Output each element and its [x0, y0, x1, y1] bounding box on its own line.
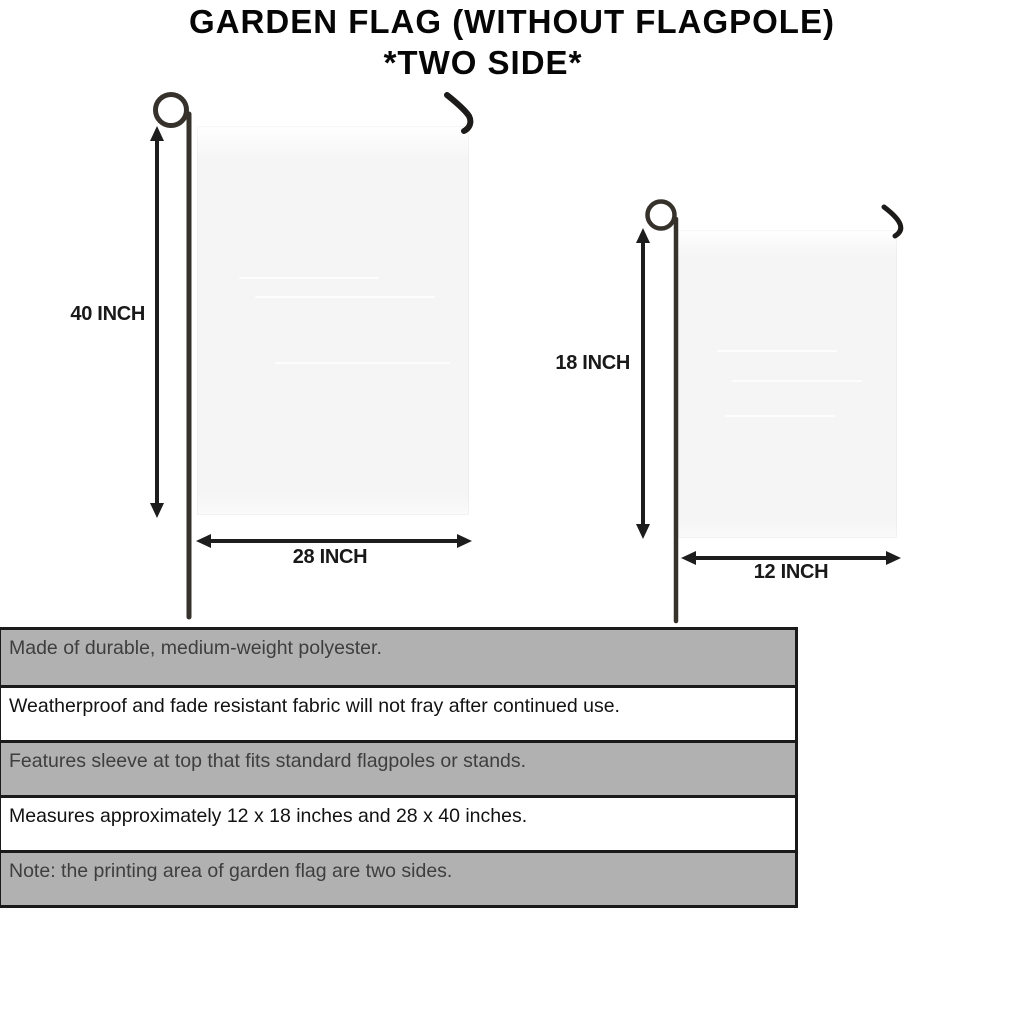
feature-text: Measures approximately 12 x 18 inches an… [9, 805, 527, 827]
feature-table: Made of durable, medium-weight polyester… [0, 627, 798, 908]
feature-row: Features sleeve at top that fits standar… [1, 740, 795, 795]
large-flagpole-icon [156, 95, 190, 618]
garden-flag-infographic: GARDEN FLAG (WITHOUT FLAGPOLE) *TWO SIDE… [0, 0, 1024, 1024]
small-height-arrow [636, 228, 650, 539]
feature-row: Weatherproof and fade resistant fabric w… [1, 685, 795, 740]
small-flag-fabric [677, 230, 897, 538]
page-title: GARDEN FLAG (WITHOUT FLAGPOLE) [0, 3, 1024, 41]
fold-streak [275, 362, 450, 364]
feature-row: Made of durable, medium-weight polyester… [1, 630, 795, 685]
feature-row: Note: the printing area of garden flag a… [1, 850, 795, 905]
large-flag-width-label: 28 INCH [270, 546, 390, 569]
large-height-arrow [150, 126, 164, 518]
feature-text: Made of durable, medium-weight polyester… [9, 637, 382, 659]
large-flag-fabric [197, 126, 469, 515]
feature-row: Measures approximately 12 x 18 inches an… [1, 795, 795, 850]
small-flag-width-label: 12 INCH [731, 561, 851, 584]
feature-text: Features sleeve at top that fits standar… [9, 750, 526, 772]
page-subtitle: *TWO SIDE* [0, 44, 995, 82]
fold-streak [239, 277, 379, 279]
fold-streak [725, 415, 835, 417]
fold-streak [732, 380, 862, 382]
small-flagpole-icon [648, 202, 677, 622]
large-flag-height-label: 40 INCH [25, 303, 145, 326]
feature-text: Weatherproof and fade resistant fabric w… [9, 695, 620, 717]
small-flag-height-label: 18 INCH [510, 352, 630, 375]
fold-streak [255, 296, 435, 298]
fold-streak [717, 350, 837, 352]
feature-text: Note: the printing area of garden flag a… [9, 860, 452, 882]
